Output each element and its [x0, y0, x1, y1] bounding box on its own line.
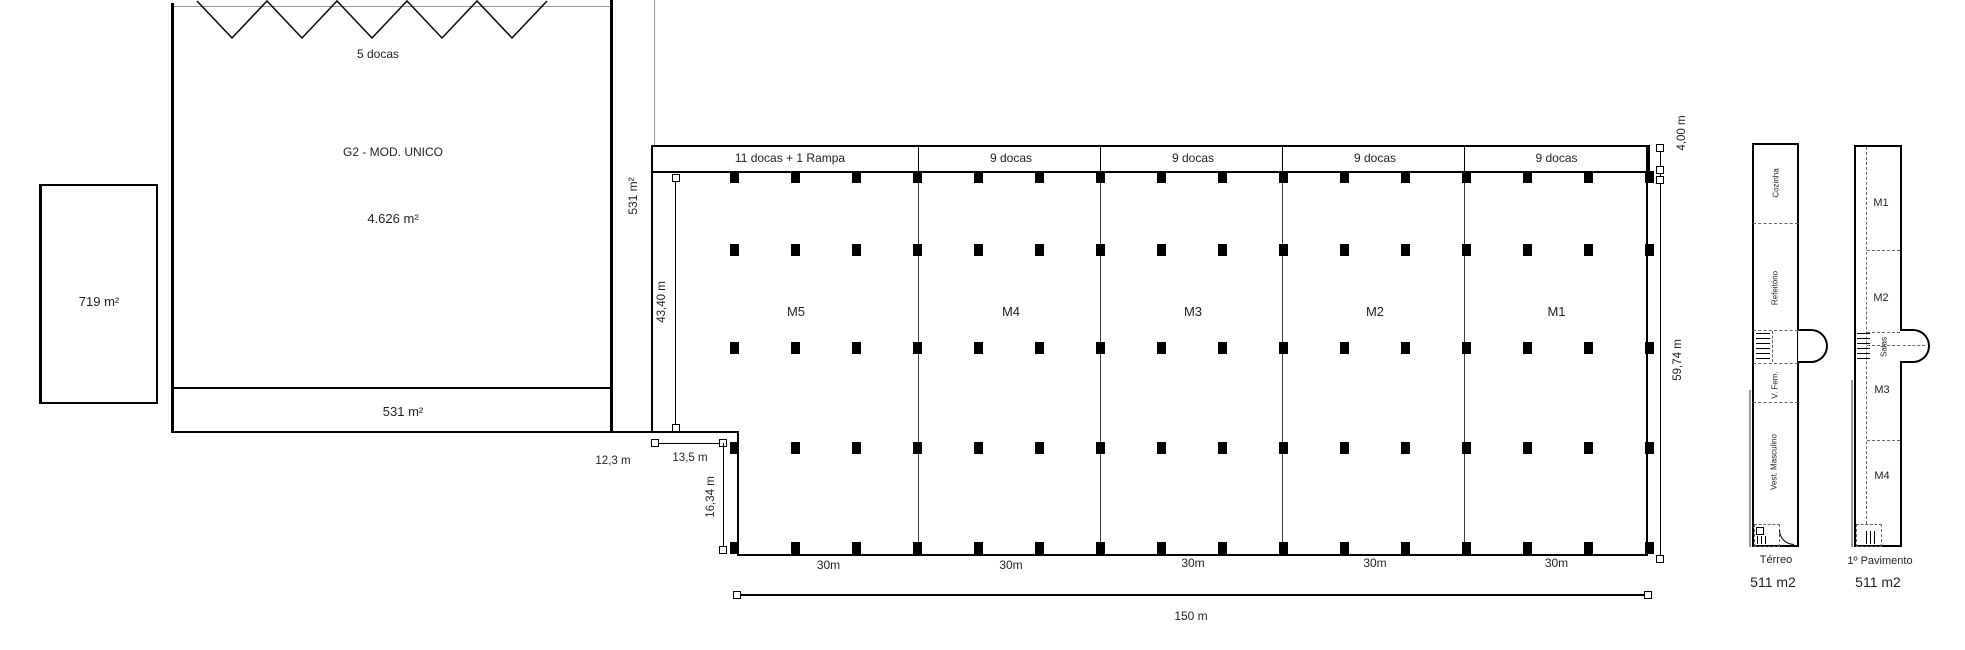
g2-area-label: 4.626 m²	[293, 211, 493, 226]
column-marker	[1157, 171, 1166, 183]
column-marker	[1035, 542, 1044, 554]
room-divider	[1753, 402, 1798, 403]
room-label-male-locker: Vest. Masculino	[1770, 434, 1779, 490]
dimension-label-module-width: 30m	[1284, 556, 1466, 570]
column-marker	[730, 244, 739, 256]
dimension-label-module-width: 30m	[1102, 556, 1284, 570]
column-marker	[974, 244, 983, 256]
room-divider	[1753, 330, 1798, 331]
dock-zigzag	[173, 0, 613, 42]
module-divider	[1282, 173, 1283, 554]
column-marker	[1279, 542, 1288, 554]
room-label-kitchen: Cozinha	[1772, 168, 1781, 197]
room-label-m4: M4	[1859, 470, 1905, 482]
column-marker	[1157, 244, 1166, 256]
column-marker	[974, 442, 983, 454]
column-marker	[1035, 342, 1044, 354]
column-marker	[1340, 442, 1349, 454]
module-label-m1: M1	[1466, 304, 1647, 319]
column-marker	[1401, 244, 1410, 256]
bump-divider	[1903, 345, 1925, 346]
column-marker	[1584, 542, 1593, 554]
column-marker	[1218, 244, 1227, 256]
column-marker	[1645, 342, 1654, 354]
column-marker	[852, 442, 861, 454]
g2-title: G2 - MOD. UNICO	[293, 145, 493, 159]
dimension-label-module-width: 30m	[920, 558, 1102, 572]
column-marker	[1462, 442, 1471, 454]
column-marker	[791, 442, 800, 454]
column-marker	[1340, 542, 1349, 554]
entrance-bump	[1900, 329, 1930, 363]
tower-ground-caption: Térreo	[1726, 554, 1826, 566]
column-marker	[1218, 542, 1227, 554]
column-marker	[1218, 171, 1227, 183]
column-marker	[974, 542, 983, 554]
column-marker	[1645, 244, 1654, 256]
module-divider	[1464, 173, 1465, 554]
column-marker	[974, 342, 983, 354]
g2-right-wall	[610, 0, 613, 433]
g2-docks-label: 5 docas	[278, 47, 478, 61]
column-marker	[1584, 171, 1593, 183]
tower-ground-area: 511 m2	[1723, 574, 1823, 590]
room-label-salas: Salas	[1880, 337, 1889, 357]
dock-label-m3: 9 docas	[1102, 151, 1284, 165]
column-marker	[913, 244, 922, 256]
entrance-bump	[1798, 329, 1828, 363]
dock-label-m5: 11 docas + 1 Rampa	[660, 151, 920, 165]
column-marker	[1096, 342, 1105, 354]
warehouse-left-wall	[651, 145, 653, 433]
column-marker	[1035, 171, 1044, 183]
room-divider	[1867, 440, 1900, 441]
column-marker	[1523, 244, 1532, 256]
column-marker	[791, 244, 800, 256]
column-marker	[791, 542, 800, 554]
column-marker	[1279, 171, 1288, 183]
column-marker	[730, 171, 739, 183]
column-marker	[1218, 342, 1227, 354]
column-marker	[1462, 342, 1471, 354]
annex-area-label: 719 m²	[40, 294, 158, 309]
dock-label-m4: 9 docas	[920, 151, 1102, 165]
dimension-label-module-width: 30m	[1466, 556, 1647, 570]
column-marker	[1035, 244, 1044, 256]
column-marker	[1218, 442, 1227, 454]
column-marker	[1401, 171, 1410, 183]
dimension-label-total-width: 150 m	[1091, 609, 1291, 623]
column-marker	[1401, 442, 1410, 454]
module-label-m2: M2	[1284, 304, 1466, 319]
column-marker	[1157, 442, 1166, 454]
room-label-m2: M2	[1858, 292, 1904, 304]
floor-plan-canvas: 5 docas G2 - MOD. UNICO 4.626 m² 531 m² …	[0, 0, 1965, 650]
column-marker	[1584, 244, 1593, 256]
column-marker	[1584, 442, 1593, 454]
column-marker	[974, 171, 983, 183]
column-marker	[1340, 171, 1349, 183]
dock-label-m2: 9 docas	[1284, 151, 1466, 165]
column-marker	[1584, 342, 1593, 354]
fixture-hatch	[1866, 531, 1877, 544]
column-marker	[1645, 171, 1654, 183]
room-divider	[1867, 250, 1900, 251]
column-marker	[1462, 542, 1471, 554]
column-marker	[1462, 244, 1471, 256]
module-label-m5: M5	[666, 304, 926, 319]
column-marker	[1279, 342, 1288, 354]
room-divider	[1753, 363, 1798, 364]
column-marker	[1096, 244, 1105, 256]
module-label-m3: M3	[1102, 304, 1284, 319]
dimension-label-module-width: 30m	[737, 558, 920, 572]
column-marker	[913, 171, 922, 183]
column-marker	[791, 342, 800, 354]
column-marker	[1096, 542, 1105, 554]
column-marker	[1645, 442, 1654, 454]
column-marker	[1096, 442, 1105, 454]
stairs	[1857, 333, 1870, 361]
room-divider	[1867, 332, 1900, 333]
column-marker	[1096, 171, 1105, 183]
corridor-right-line	[654, 0, 655, 146]
room-label-female-locker: V. Fem.	[1771, 371, 1780, 398]
column-marker	[1157, 542, 1166, 554]
column-marker	[1462, 171, 1471, 183]
column-marker	[730, 442, 739, 454]
dimension-label-dock-depth: 4,00 m	[1676, 115, 1688, 150]
column-marker	[852, 342, 861, 354]
column-marker	[1523, 542, 1532, 554]
g2-strip-area-label: 531 m²	[303, 404, 503, 419]
column-marker	[913, 342, 922, 354]
room-divider	[1753, 223, 1798, 224]
room-label-cafeteria: Refeitório	[1771, 271, 1780, 305]
column-marker	[852, 171, 861, 183]
module-divider	[918, 173, 919, 554]
column-marker	[791, 171, 800, 183]
g2-strip-top-line	[173, 387, 613, 389]
column-marker	[1401, 542, 1410, 554]
column-marker	[1523, 442, 1532, 454]
column-marker	[730, 542, 739, 554]
column-marker	[1340, 244, 1349, 256]
corridor-area-label: 531 m²	[626, 177, 640, 214]
room-label-m3: M3	[1859, 384, 1905, 396]
column-marker	[1157, 342, 1166, 354]
stairs	[1756, 333, 1770, 361]
column-marker	[913, 542, 922, 554]
module-label-m4: M4	[920, 304, 1102, 319]
column-marker	[1035, 442, 1044, 454]
column-marker	[852, 244, 861, 256]
column-marker	[1523, 342, 1532, 354]
dock-label-m1: 9 docas	[1466, 151, 1647, 165]
column-marker	[1279, 442, 1288, 454]
g2-strip-bottom-line	[171, 431, 739, 433]
fixture-hatch	[1757, 536, 1769, 544]
module-divider	[1100, 173, 1101, 554]
dimension-label-gap: 12,3 m	[577, 455, 649, 467]
g2-left-wall	[171, 3, 174, 433]
column-marker	[730, 342, 739, 354]
column-marker	[913, 442, 922, 454]
column-marker	[1340, 342, 1349, 354]
column-marker	[1523, 171, 1532, 183]
column-marker	[1645, 542, 1654, 554]
dimension-label-left-height: 43,40 m	[656, 281, 668, 323]
dimension-label-right-height: 59,74 m	[1672, 339, 1684, 381]
column-marker	[852, 542, 861, 554]
dimension-label-notch-height: 16,34 m	[705, 476, 717, 518]
room-label-m1: M1	[1858, 197, 1904, 209]
column-marker	[1401, 342, 1410, 354]
tower-first-caption: 1º Pavimento	[1830, 555, 1930, 567]
stair-enclosure	[1772, 331, 1773, 362]
column-marker	[1279, 244, 1288, 256]
tower-first-area: 511 m2	[1828, 574, 1928, 590]
dimension-label-notch-width: 13,5 m	[654, 452, 726, 464]
